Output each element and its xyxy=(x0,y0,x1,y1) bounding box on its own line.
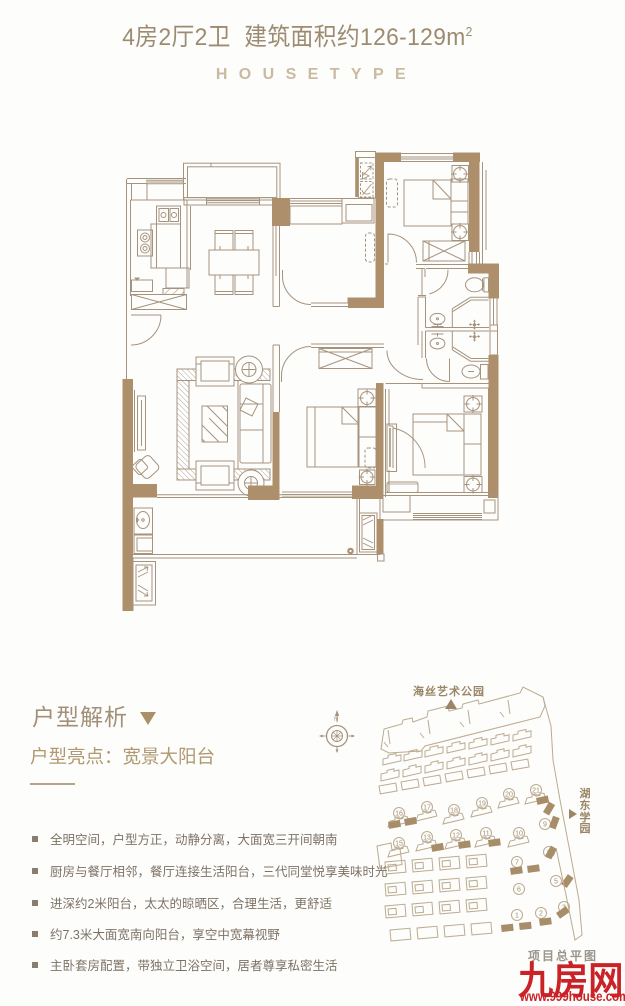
svg-text:1: 1 xyxy=(515,913,519,920)
svg-text:N: N xyxy=(334,717,338,723)
svg-text:7: 7 xyxy=(515,860,519,867)
svg-text:2: 2 xyxy=(539,911,543,918)
svg-text:9: 9 xyxy=(543,822,547,829)
svg-text:5: 5 xyxy=(554,879,558,886)
svg-text:6: 6 xyxy=(517,887,521,894)
